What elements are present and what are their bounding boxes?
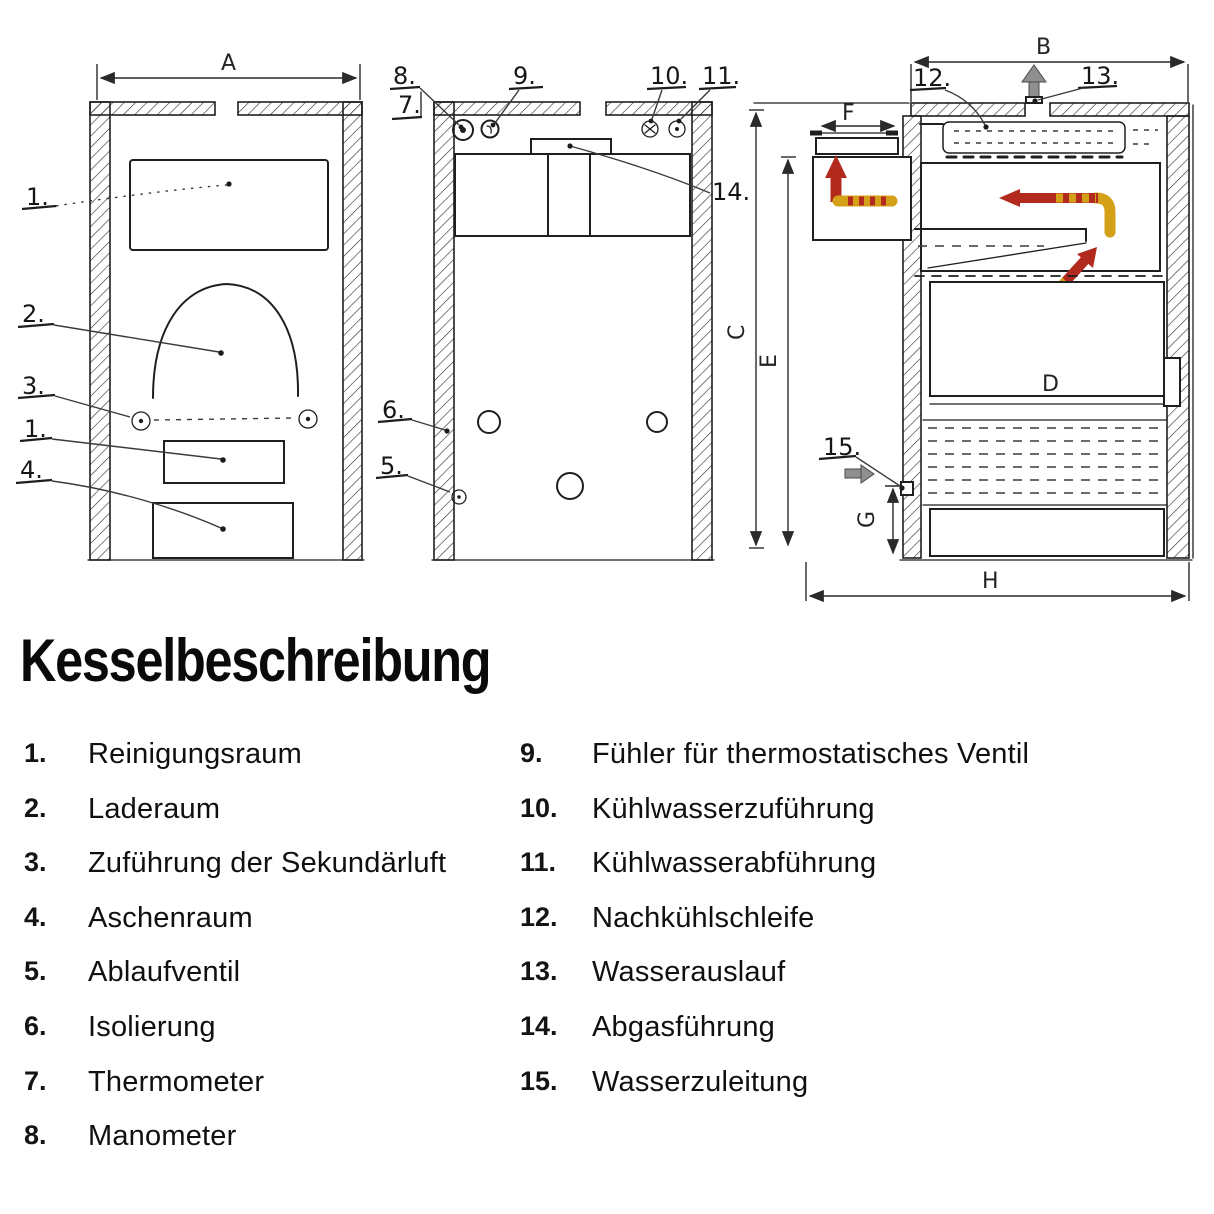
dim-label-c: C [725, 325, 750, 340]
rear-view-drawing: 8. 7. 9. 10. [376, 62, 750, 560]
loading-chamber-side: D [930, 282, 1180, 406]
dim-label-f: F [842, 101, 855, 126]
dim-label-h: H [982, 569, 999, 594]
dim-label-a: A [221, 51, 236, 76]
svg-text:11.: 11. [702, 62, 740, 90]
callout-3: 3. [18, 372, 130, 417]
legend-number: 6. [24, 1011, 88, 1042]
dim-label-b: B [1036, 35, 1051, 60]
callout-1b: 1. [20, 415, 226, 463]
secondary-air-inlets [132, 410, 317, 430]
legend-label: Aschenraum [88, 902, 253, 935]
legend-right-column: 9. Fühler für thermostatisches Ventil 10… [520, 738, 1210, 1120]
legend-number: 7. [24, 1066, 88, 1097]
legend-left-column: 1. Reinigungsraum 2. Laderaum 3. Zuführu… [24, 738, 514, 1175]
rear-openings [478, 411, 667, 499]
legend-item-3: 3. Zuführung der Sekundärluft [24, 847, 514, 902]
rear-cleaning-panels [455, 154, 690, 236]
dimension-a: A [97, 51, 360, 100]
callout-13: 13. [1032, 62, 1119, 104]
legend-number: 2. [24, 793, 88, 824]
legend-item-11: 11. Kühlwasserabführung [520, 847, 1210, 902]
legend-label: Kühlwasserabführung [592, 847, 876, 880]
legend-item-1: 1. Reinigungsraum [24, 738, 514, 793]
legend-number: 14. [520, 1011, 592, 1042]
legend-number: 10. [520, 793, 592, 824]
legend-label: Manometer [88, 1120, 236, 1153]
legend-item-6: 6. Isolierung [24, 1011, 514, 1066]
kessel-description-page: A 1. [0, 0, 1214, 1214]
svg-text:8.: 8. [393, 62, 416, 90]
legend-label: Zuführung der Sekundärluft [88, 847, 446, 880]
legend-item-10: 10. Kühlwasserzuführung [520, 793, 1210, 848]
dimension-e: E [757, 157, 796, 545]
legend-number: 4. [24, 902, 88, 933]
boiler-technical-drawing: A 1. [0, 0, 1214, 620]
cleaning-chamber-opening [130, 160, 328, 250]
dim-label-g: G [855, 511, 880, 528]
dimension-c: C [725, 110, 764, 548]
svg-text:4.: 4. [20, 456, 43, 484]
dimension-h: H [806, 562, 1189, 601]
legend-label: Wasserzuleitung [592, 1066, 808, 1099]
legend-label: Thermometer [88, 1066, 264, 1099]
legend-item-7: 7. Thermometer [24, 1066, 514, 1121]
after-cooling-loop [920, 122, 1158, 157]
legend-label: Abgasführung [592, 1011, 775, 1044]
legend-label: Fühler für thermostatisches Ventil [592, 738, 1029, 771]
legend-item-13: 13. Wasserauslauf [520, 956, 1210, 1011]
callout-9: 9. [491, 62, 543, 127]
legend-label: Reinigungsraum [88, 738, 302, 771]
loading-chamber-dome [153, 284, 298, 398]
svg-text:2.: 2. [22, 300, 45, 328]
legend-number: 13. [520, 956, 592, 987]
legend-number: 3. [24, 847, 88, 878]
legend-label: Laderaum [88, 793, 220, 826]
legend-item-8: 8. Manometer [24, 1120, 514, 1175]
legend-item-14: 14. Abgasführung [520, 1011, 1210, 1066]
legend-label: Kühlwasserzuführung [592, 793, 875, 826]
legend-item-5: 5. Ablaufventil [24, 956, 514, 1011]
legend-number: 15. [520, 1066, 592, 1097]
dim-label-e: E [757, 354, 782, 368]
grate-section [923, 420, 1167, 505]
svg-text:10.: 10. [650, 62, 688, 90]
legend-item-15: 15. Wasserzuleitung [520, 1066, 1210, 1121]
sensor-port [482, 121, 499, 138]
water-outlet-arrow [1022, 65, 1046, 99]
legend-number: 1. [24, 738, 88, 769]
legend-number: 9. [520, 738, 592, 769]
svg-text:7.: 7. [398, 91, 421, 119]
legend-label: Wasserauslauf [592, 956, 785, 989]
side-view-drawing: B [725, 35, 1193, 601]
legend-item-4: 4. Aschenraum [24, 902, 514, 957]
flue-connection-annex: F [810, 101, 911, 240]
legend-number: 11. [520, 847, 592, 878]
svg-text:14.: 14. [712, 178, 750, 206]
legend-item-2: 2. Laderaum [24, 793, 514, 848]
front-view-drawing: A 1. [16, 51, 364, 560]
legend-number: 12. [520, 902, 592, 933]
dimension-g: G [855, 486, 902, 553]
page-title: Kesselbeschreibung [20, 626, 490, 695]
cooling-water-ports [642, 121, 685, 137]
dim-label-d: D [1042, 372, 1059, 397]
ash-chamber-side [930, 509, 1164, 556]
dimension-b: B [911, 35, 1188, 102]
upper-flue-chamber [921, 163, 1160, 271]
legend-number: 5. [24, 956, 88, 987]
legend-item-12: 12. Nachkühlschleife [520, 902, 1210, 957]
svg-text:9.: 9. [513, 62, 536, 90]
legend-label: Nachkühlschleife [592, 902, 814, 935]
legend-number: 8. [24, 1120, 88, 1151]
legend-label: Isolierung [88, 1011, 216, 1044]
callout-7: 7. [392, 91, 422, 119]
callout-2: 2. [18, 300, 224, 356]
legend-item-9: 9. Fühler für thermostatisches Ventil [520, 738, 1210, 793]
legend-label: Ablaufventil [88, 956, 240, 989]
